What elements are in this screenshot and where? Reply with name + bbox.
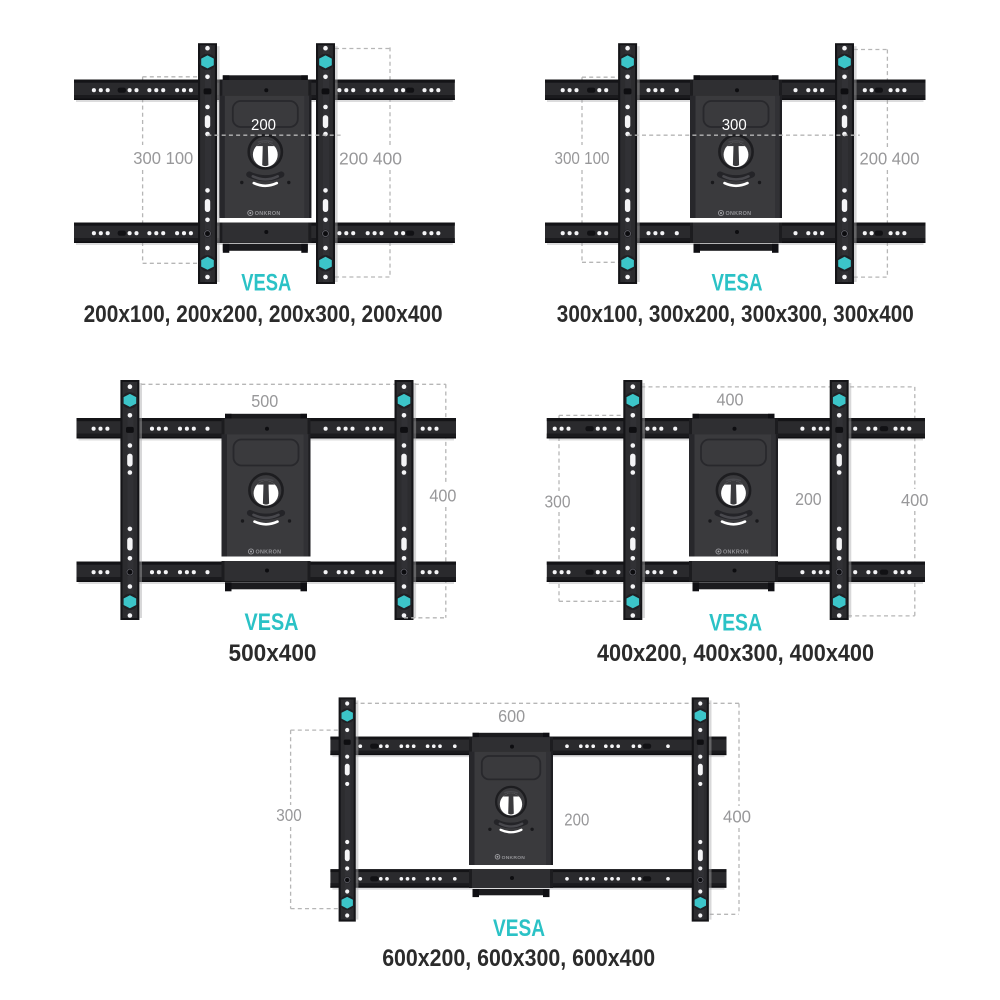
svg-text:VESA: VESA xyxy=(241,270,291,297)
svg-text:500: 500 xyxy=(251,391,278,411)
svg-text:ONKRON: ONKRON xyxy=(726,211,752,217)
svg-text:400: 400 xyxy=(901,490,929,510)
svg-text:300 100: 300 100 xyxy=(555,148,610,168)
svg-text:300: 300 xyxy=(545,492,571,512)
svg-text:500x400: 500x400 xyxy=(229,640,317,667)
svg-text:300x100, 300x200, 300x300, 300: 300x100, 300x200, 300x300, 300x400 xyxy=(557,301,914,328)
svg-text:VESA: VESA xyxy=(712,270,763,297)
svg-text:ONKRON: ONKRON xyxy=(723,550,749,556)
svg-text:300: 300 xyxy=(276,805,302,825)
svg-text:400: 400 xyxy=(723,807,751,827)
svg-text:VESA: VESA xyxy=(709,609,762,636)
svg-text:600x200, 600x300, 600x400: 600x200, 600x300, 600x400 xyxy=(382,945,655,972)
svg-text:VESA: VESA xyxy=(493,915,545,942)
svg-text:200: 200 xyxy=(251,117,276,134)
svg-text:400: 400 xyxy=(717,390,744,410)
svg-text:200: 200 xyxy=(795,489,822,509)
svg-text:400: 400 xyxy=(429,486,456,506)
svg-text:200 400: 200 400 xyxy=(339,149,402,169)
svg-text:ONKRON: ONKRON xyxy=(502,855,526,861)
svg-text:ONKRON: ONKRON xyxy=(255,211,281,217)
svg-text:300: 300 xyxy=(722,117,747,134)
svg-text:200 400: 200 400 xyxy=(860,149,920,169)
svg-text:400x200, 400x300, 400x400: 400x200, 400x300, 400x400 xyxy=(597,640,874,667)
svg-text:200: 200 xyxy=(564,809,589,829)
svg-text:ONKRON: ONKRON xyxy=(256,550,282,556)
svg-text:300 100: 300 100 xyxy=(133,148,193,168)
svg-text:VESA: VESA xyxy=(245,609,299,636)
svg-text:600: 600 xyxy=(498,706,525,726)
svg-text:200x100, 200x200, 200x300, 200: 200x100, 200x200, 200x300, 200x400 xyxy=(84,301,443,328)
